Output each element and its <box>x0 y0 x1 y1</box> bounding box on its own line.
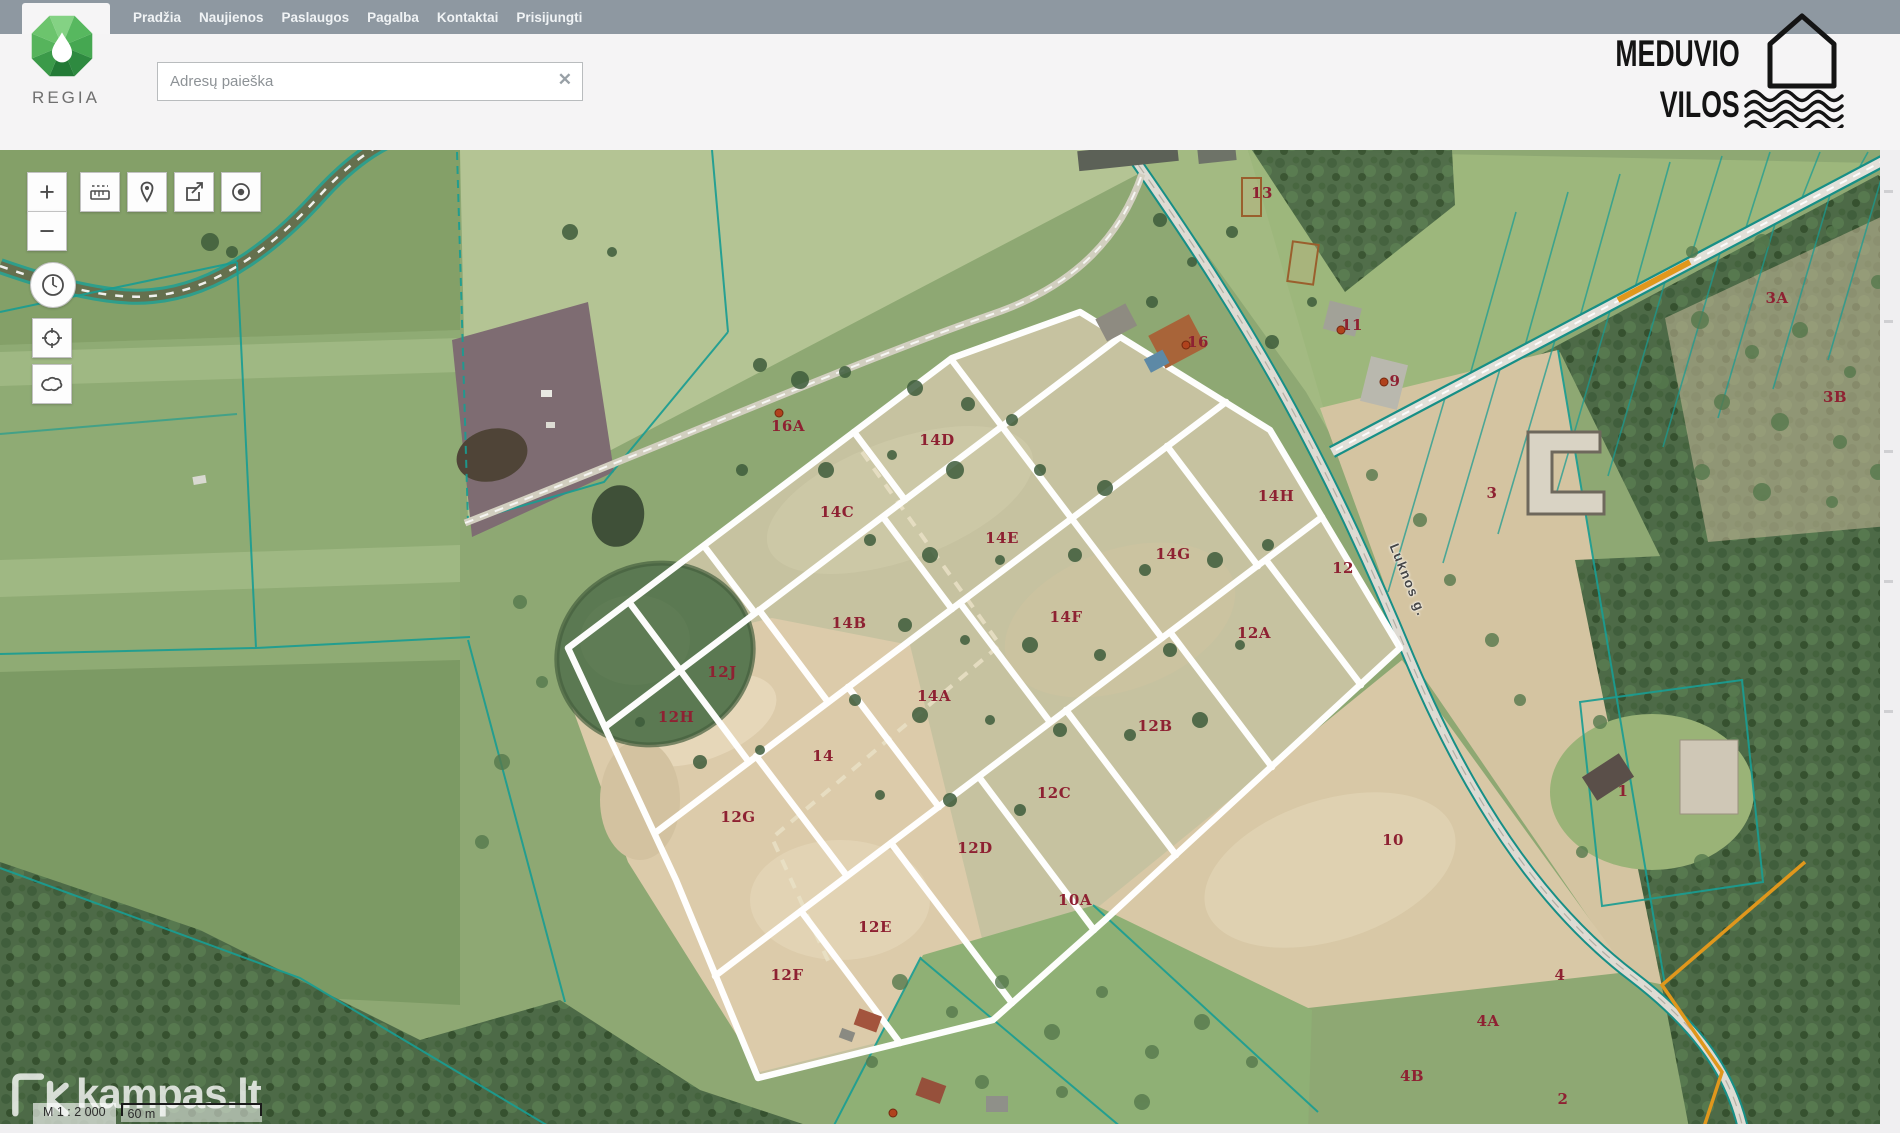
parcel-label-4A: 4A <box>1476 1012 1499 1030</box>
crosshair-icon <box>40 326 64 350</box>
parcel-label-1: 1 <box>1618 782 1629 800</box>
parcel-label-12D: 12D <box>957 839 992 857</box>
nav-item-naujienos[interactable]: Naujienos <box>199 10 264 25</box>
parcel-label-14C: 14C <box>820 503 854 521</box>
parcel-label-3B: 3B <box>1823 388 1847 406</box>
share-button[interactable] <box>174 172 214 212</box>
parcel-label-13: 13 <box>1251 184 1273 202</box>
add-marker-button[interactable] <box>127 172 167 212</box>
map-scale: M 1 : 2 000 60 m <box>33 1103 262 1124</box>
map-marker-dot-2 <box>1337 326 1346 335</box>
nav-item-pradžia[interactable]: Pradžia <box>133 10 181 25</box>
regia-gem-drop-icon <box>22 6 102 86</box>
parcel-label-14H: 14H <box>1258 487 1295 505</box>
parcel-label-12: 12 <box>1332 559 1354 577</box>
measure-button[interactable] <box>80 172 120 212</box>
zoom-out-button[interactable]: − <box>27 211 67 251</box>
parcel-label-14G: 14G <box>1155 545 1190 563</box>
house-waves-icon <box>1744 8 1852 128</box>
share-export-icon <box>182 180 206 204</box>
regia-wordmark: REGIA <box>22 88 110 108</box>
map-marker-dot-3 <box>1380 378 1389 387</box>
scale-ratio-label: M 1 : 2 000 <box>33 1103 116 1124</box>
lithuania-outline-icon <box>39 372 65 396</box>
nav-item-paslaugos[interactable]: Paslaugos <box>282 10 350 25</box>
parcel-label-14B: 14B <box>831 614 866 632</box>
parcel-label-12G: 12G <box>720 808 755 826</box>
scale-bar: 60 m <box>121 1103 262 1122</box>
parcel-label-10: 10 <box>1382 831 1404 849</box>
logo-line-1: MEDUVIO <box>1616 28 1740 79</box>
aerial-imagery <box>0 150 1900 1133</box>
parcel-label-12J: 12J <box>707 663 736 681</box>
plus-icon: + <box>39 179 55 206</box>
ruler-icon <box>88 180 112 204</box>
minus-icon: − <box>39 218 55 245</box>
nav-item-prisijungti[interactable]: Prisijungti <box>516 10 582 25</box>
target-icon <box>229 180 253 204</box>
parcel-label-10A: 10A <box>1058 891 1092 909</box>
parcel-label-14F: 14F <box>1049 608 1082 626</box>
parcel-label-14D: 14D <box>919 431 954 449</box>
parcel-label-12E: 12E <box>858 918 892 936</box>
scale-bar-label: 60 m <box>128 1107 156 1121</box>
map-pin-icon <box>135 180 159 204</box>
parcel-label-4: 4 <box>1555 966 1566 984</box>
parcel-label-12C: 12C <box>1037 784 1071 802</box>
map-marker-dot-1 <box>1182 341 1191 350</box>
nav-item-kontaktai[interactable]: Kontaktai <box>437 10 499 25</box>
map-canvas[interactable]: + − <box>0 150 1900 1133</box>
history-button[interactable] <box>30 262 76 308</box>
parcel-label-9: 9 <box>1390 372 1401 390</box>
close-icon[interactable]: ✕ <box>558 70 572 90</box>
parcel-label-16A: 16A <box>771 417 805 435</box>
parcel-label-12A: 12A <box>1237 624 1271 642</box>
right-edge-strip <box>1880 150 1900 1133</box>
crosshair-button[interactable] <box>32 318 72 358</box>
parcel-label-4B: 4B <box>1400 1067 1424 1085</box>
parcel-label-14: 14 <box>812 747 834 765</box>
parcel-label-12F: 12F <box>770 966 803 984</box>
parcel-label-3A: 3A <box>1765 289 1788 307</box>
parcel-label-14E: 14E <box>985 529 1019 547</box>
parcel-label-14A: 14A <box>917 687 951 705</box>
regia-brand[interactable]: REGIA <box>22 6 110 108</box>
main-navigation: PradžiaNaujienosPaslaugosPagalbaKontakta… <box>133 0 582 34</box>
map-marker-dot-0 <box>775 409 784 418</box>
parcel-label-12H: 12H <box>658 708 695 726</box>
waves-icon <box>1746 92 1842 129</box>
map-marker-dot-4 <box>889 1109 898 1118</box>
logo-line-2: VILOS <box>1616 79 1740 130</box>
address-search-box: ✕ <box>157 62 583 101</box>
lithuania-extent-button[interactable] <box>32 364 72 404</box>
parcel-label-12B: 12B <box>1137 717 1172 735</box>
locate-button[interactable] <box>221 172 261 212</box>
parcel-label-2: 2 <box>1558 1090 1569 1108</box>
address-search-input[interactable] <box>158 63 582 100</box>
parcel-label-3: 3 <box>1487 484 1498 502</box>
parcel-label-16: 16 <box>1187 333 1209 351</box>
bottom-edge-strip <box>0 1124 1900 1133</box>
nav-item-pagalba[interactable]: Pagalba <box>367 10 419 25</box>
zoom-in-button[interactable]: + <box>27 172 67 212</box>
clock-icon <box>40 272 66 298</box>
